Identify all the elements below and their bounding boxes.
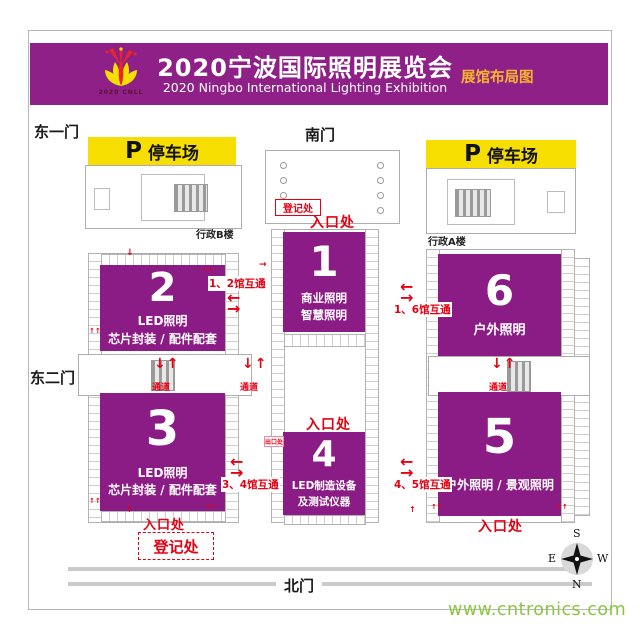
hall-4-line2: 及测试仪器 (298, 495, 351, 510)
mini-arrow-marker: ↑↑ (205, 504, 217, 511)
passage-label-center: 通道 (240, 380, 258, 393)
gate-east1-label: 东一门 (34, 121, 79, 142)
parking-right-label: 停车场 (487, 142, 538, 167)
interconnect-4-5-label: 4、5馆互通 (393, 477, 452, 492)
interconnect-1-6-arrows: ← → (400, 281, 413, 303)
arrow-right-icon: → (227, 303, 240, 314)
hall-5-number: 5 (483, 413, 516, 461)
gate-east2-label: 东二门 (30, 367, 75, 388)
mini-arrow-marker: ↑ (126, 506, 133, 514)
admin-building-b (85, 165, 242, 229)
admin-b-label: 行政B楼 (196, 226, 234, 241)
column-dot (280, 177, 287, 184)
registration-sign-bottom: 登记处 (138, 532, 214, 560)
passage-arrows-right: ↓↑ (491, 356, 516, 372)
passage-label-right: 通道 (489, 380, 507, 393)
page-subtitle: 2020 Ningbo International Lighting Exhib… (140, 80, 470, 95)
mini-arrow-marker: → (259, 261, 267, 270)
page-title: 2020宁波国际照明展览会 (140, 48, 470, 83)
booth-strip (365, 229, 379, 523)
hall-2-line2: 芯片封装 / 配件配套 (108, 331, 217, 348)
mini-arrow-marker: ↑↑ (89, 328, 101, 335)
road-line (68, 567, 568, 571)
hall-5-line1: 户外照明 / 景观照明 (445, 477, 554, 494)
watermark-text: www.cntronics.com (448, 600, 626, 620)
admin-a-label: 行政A楼 (428, 233, 466, 248)
gate-south-label: 南门 (305, 124, 335, 145)
hall-3-number: 3 (146, 405, 179, 453)
hall-2-line1: LED照明 (138, 313, 188, 330)
mini-arrow-marker: ↑ (409, 506, 416, 514)
entrance-sign-hall5: 入口处 (478, 516, 523, 536)
entrance-sign-hall1: 入口处 (310, 212, 355, 232)
parking-left-label: 停车场 (148, 139, 199, 164)
exit-sign-hall4: 出口处 (264, 436, 284, 447)
column-dot (377, 207, 384, 214)
parking-left-banner: P 停车场 (88, 137, 236, 165)
building-stair-hatch (174, 184, 208, 212)
hall-2: 2 LED照明 芯片封装 / 配件配套 (100, 265, 225, 351)
passage-label-left: 通道 (152, 380, 170, 393)
parking-p-symbol: P (125, 138, 142, 164)
hall-1-line1: 商业照明 (301, 290, 347, 307)
gate-north-label: 北门 (276, 575, 322, 596)
entrance-sign-hall3: 入口处 (143, 514, 185, 533)
compass-e: E (548, 552, 556, 565)
building-inner-room (94, 188, 110, 210)
interconnect-1-6-label: 1、6馆互通 (393, 302, 452, 317)
hall-6: 6 户外照明 (438, 254, 561, 356)
hall-3-line1: LED照明 (138, 465, 188, 482)
hall-2-number: 2 (149, 268, 177, 308)
hall-3: 3 LED照明 芯片封装 / 配件配套 (100, 393, 225, 511)
column-dot (377, 192, 384, 199)
column-dot (280, 192, 287, 199)
compass-n: N (572, 578, 582, 591)
road-line (68, 582, 592, 586)
compass-s: S (573, 527, 581, 540)
mini-arrow-marker: ↑↑ (431, 504, 443, 511)
parking-p-symbol: P (464, 141, 481, 167)
hall-4-line1: LED制造设备 (292, 479, 357, 494)
building-inner-room (547, 191, 565, 213)
exhibition-floorplan: 2020 CNLL 2020宁波国际照明展览会 2020 Ningbo Inte… (0, 0, 640, 640)
interconnect-4-5-arrows: ← → (400, 456, 413, 478)
booth-row (284, 334, 366, 347)
interconnect-3-4-label: 3、4馆互通 (221, 477, 280, 492)
hall-6-line1: 户外照明 (473, 322, 525, 341)
building-stair-hatch (455, 189, 491, 217)
passage-arrows-center: ↓↑ (242, 356, 267, 372)
mini-arrow-marker: ↑↑ (556, 504, 568, 511)
mini-arrow-marker: ↓ (126, 249, 134, 258)
compass-icon (559, 541, 595, 577)
hall-4: 4 LED制造设备 及测试仪器 (283, 432, 365, 515)
interconnect-1-2-arrows: ← → (227, 292, 240, 314)
compass-w: W (597, 552, 608, 565)
admin-building-a (426, 168, 576, 234)
mini-arrow-marker: ↑↑ (202, 268, 214, 275)
logo-flower-icon (99, 46, 143, 88)
hall-4-number: 4 (311, 437, 336, 473)
layout-map-label: 展馆布局图 (461, 66, 571, 87)
column-dot (280, 162, 287, 169)
hall-1-line2: 智慧照明 (301, 307, 347, 324)
entrance-sign-hall4: 入口处 (306, 414, 351, 434)
parking-right-banner: P 停车场 (426, 140, 576, 168)
booth-row (284, 515, 366, 525)
hall-1-number: 1 (309, 241, 338, 283)
hall-6-number: 6 (485, 270, 514, 312)
hall-1: 1 商业照明 智慧照明 (283, 232, 365, 332)
mini-arrow-marker: ↑↑ (89, 498, 101, 505)
passage-arrows-left: ↓↑ (154, 356, 179, 372)
column-dot (377, 177, 384, 184)
hall-5: 5 户外照明 / 景观照明 (438, 392, 561, 516)
hall-3-line2: 芯片封装 / 配件配套 (108, 482, 217, 499)
column-dot (377, 162, 384, 169)
interconnect-3-4-arrows: ← → (230, 456, 243, 478)
